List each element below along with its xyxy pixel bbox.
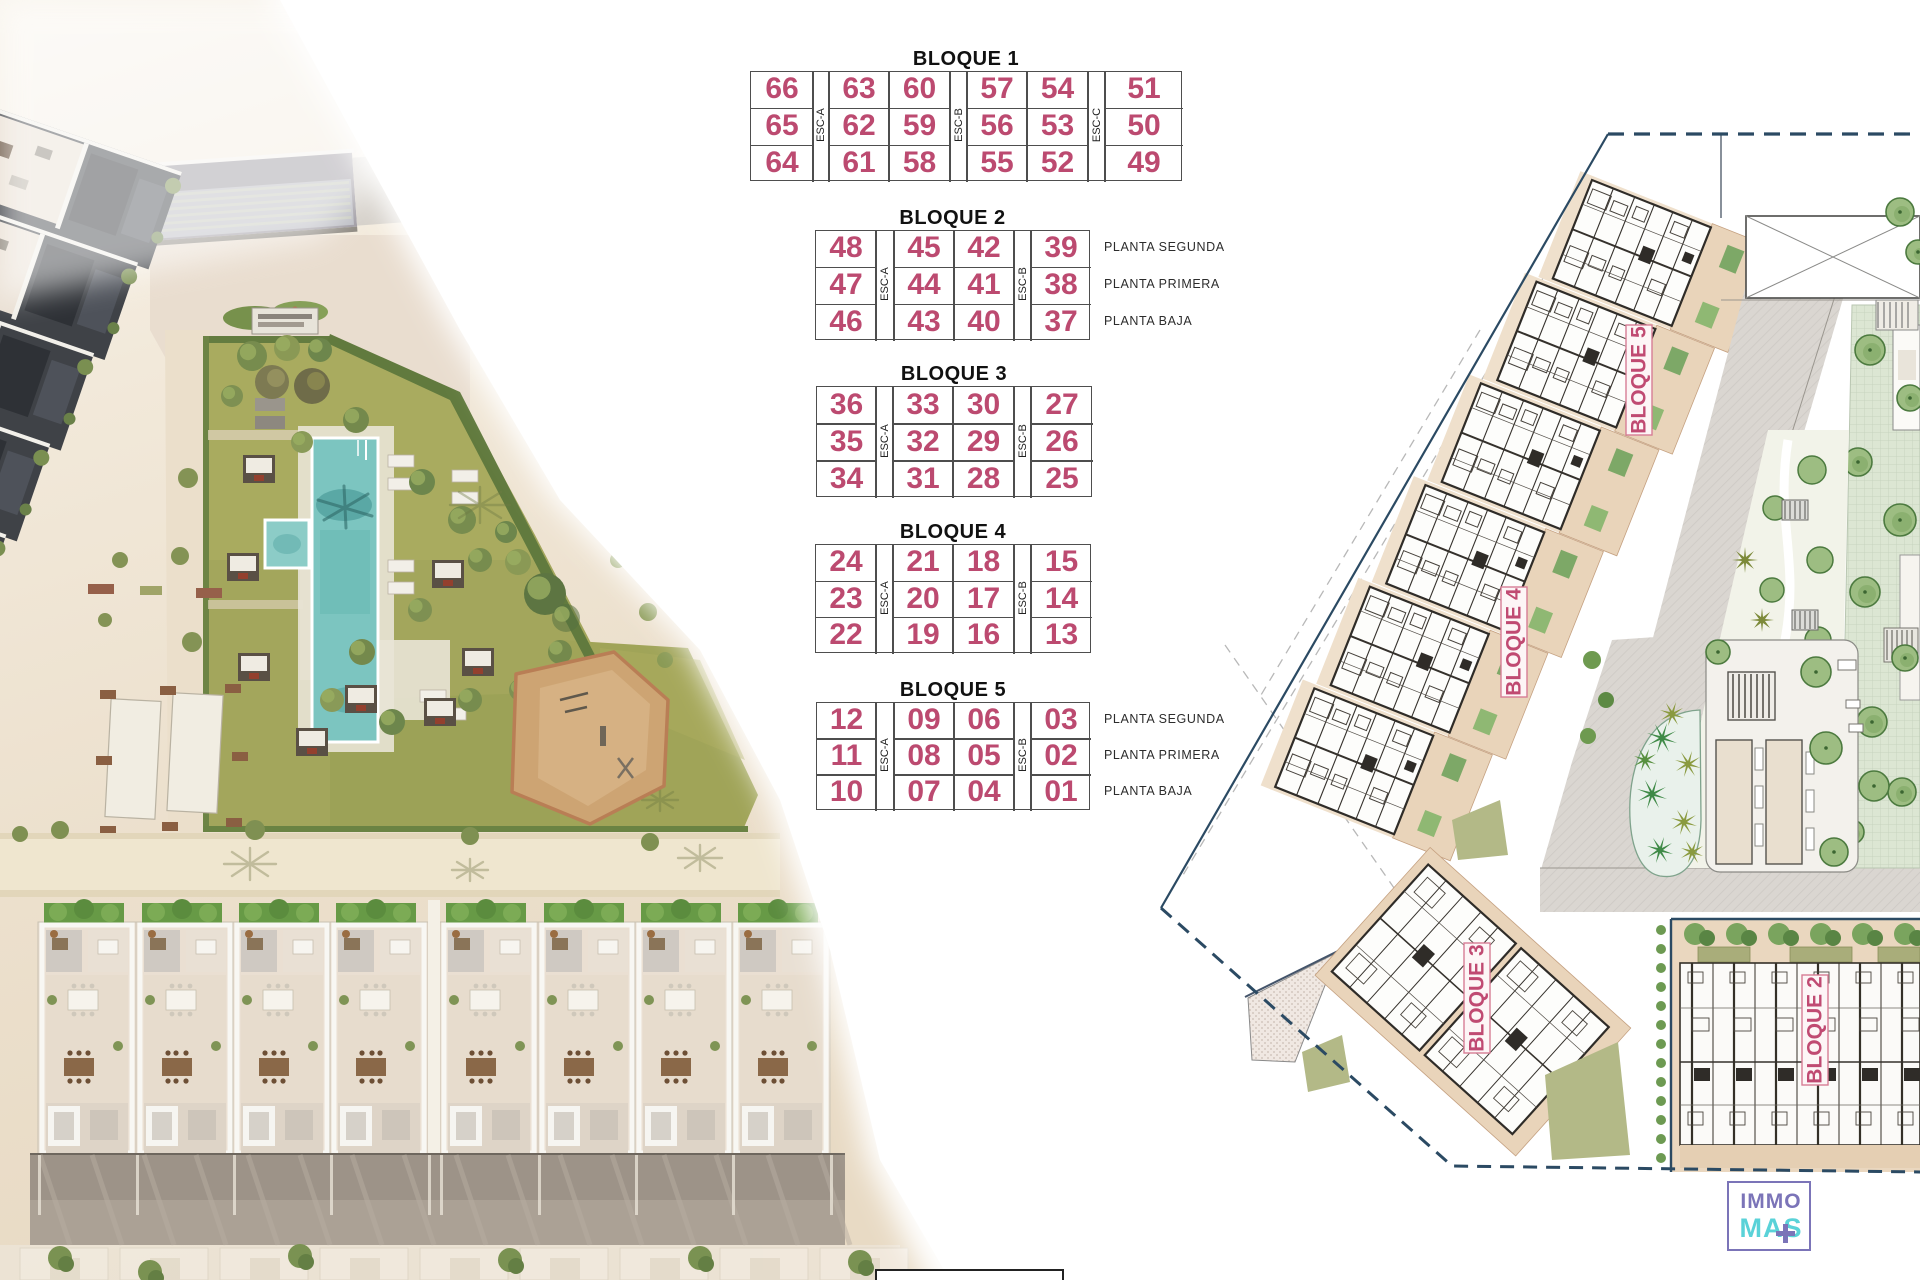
svg-text:BLOQUE 2: BLOQUE 2 <box>1804 976 1827 1083</box>
svg-text:BLOQUE 5: BLOQUE 5 <box>1628 326 1651 434</box>
svg-text:BLOQUE 3: BLOQUE 3 <box>1466 944 1489 1051</box>
svg-text:BLOQUE 4: BLOQUE 4 <box>1503 588 1526 696</box>
